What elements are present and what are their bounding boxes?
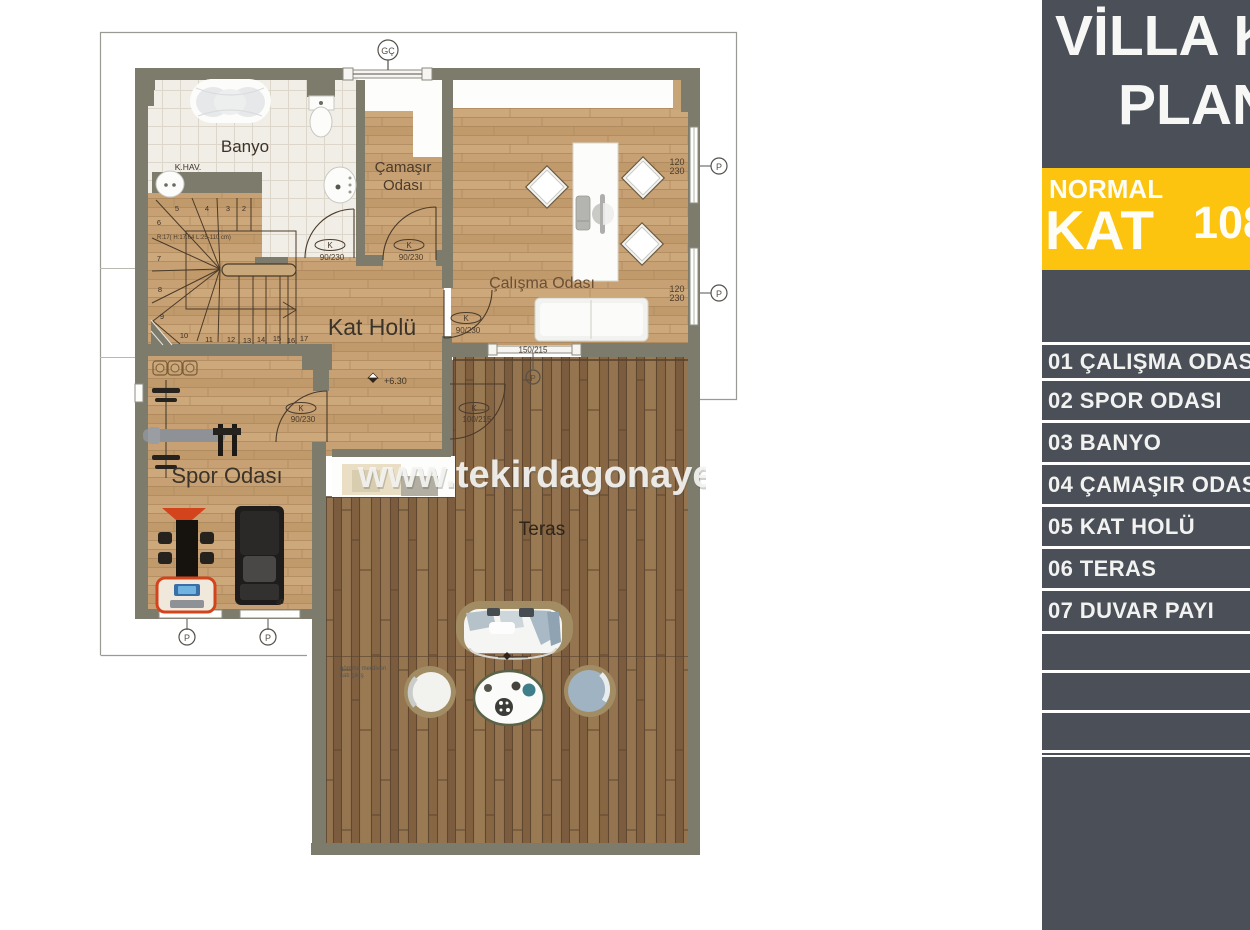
svg-text:Odası: Odası	[383, 177, 423, 194]
svg-text:16: 16	[287, 336, 295, 345]
svg-text:8: 8	[158, 285, 162, 294]
svg-text:5: 5	[175, 204, 179, 213]
svg-text:+6.30: +6.30	[384, 376, 407, 386]
svg-text:4: 4	[205, 204, 209, 213]
svg-text:Çamaşır: Çamaşır	[375, 159, 432, 176]
svg-text:P: P	[716, 289, 722, 299]
svg-text:çatı çıkış: çatı çıkış	[340, 673, 364, 679]
svg-text:K.HAV.: K.HAV.	[175, 162, 201, 172]
svg-text:K: K	[471, 404, 477, 413]
svg-text:10: 10	[180, 331, 188, 340]
svg-text:230: 230	[669, 166, 684, 176]
svg-text:K: K	[463, 314, 469, 323]
svg-text:15: 15	[273, 334, 281, 343]
svg-text:17: 17	[300, 334, 308, 343]
svg-text:www.tekirdagonayemlak: www.tekirdagonayemlak	[357, 454, 801, 496]
svg-text:R:17( H:17.64 L:25-110 cm): R:17( H:17.64 L:25-110 cm)	[157, 235, 231, 241]
svg-text:P: P	[265, 633, 271, 643]
svg-text:P: P	[716, 162, 722, 172]
svg-text:13: 13	[243, 336, 251, 345]
svg-text:Kat Holü: Kat Holü	[328, 314, 416, 340]
svg-text:P: P	[184, 633, 190, 643]
svg-text:90/230: 90/230	[456, 326, 481, 335]
svg-text:30: 30	[276, 599, 284, 606]
svg-text:K: K	[406, 241, 412, 250]
svg-text:14: 14	[257, 335, 265, 344]
svg-text:Çalışma Odası: Çalışma Odası	[489, 275, 595, 292]
svg-text:K: K	[298, 404, 304, 413]
svg-text:GÇ: GÇ	[381, 46, 395, 56]
svg-text:gömme merdiven: gömme merdiven	[340, 666, 386, 672]
svg-text:Teras: Teras	[519, 519, 565, 540]
svg-text:3: 3	[226, 204, 230, 213]
svg-text:12: 12	[227, 335, 235, 344]
svg-text:11: 11	[205, 335, 213, 344]
svg-text:6: 6	[157, 218, 161, 227]
svg-text:2: 2	[242, 204, 246, 213]
svg-text:7: 7	[157, 254, 161, 263]
svg-text:230: 230	[669, 293, 684, 303]
svg-text:9: 9	[160, 312, 164, 321]
svg-text:P: P	[530, 374, 535, 383]
svg-text:90/230: 90/230	[320, 253, 345, 262]
svg-text:K: K	[327, 241, 333, 250]
svg-text:90/230: 90/230	[399, 253, 424, 262]
svg-text:90/230: 90/230	[291, 415, 316, 424]
svg-text:Spor Odası: Spor Odası	[171, 463, 282, 488]
svg-text:100/215: 100/215	[463, 415, 492, 424]
svg-text:Banyo: Banyo	[221, 137, 269, 156]
